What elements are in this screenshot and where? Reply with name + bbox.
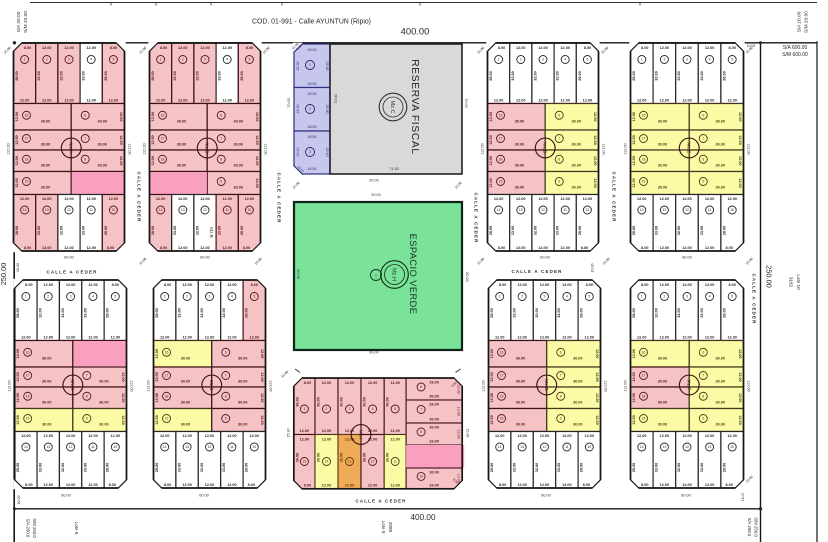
svg-text:28.00: 28.00 <box>722 463 726 473</box>
svg-text:12.00: 12.00 <box>155 415 159 425</box>
svg-text:1: 1 <box>641 58 643 62</box>
svg-text:12.00: 12.00 <box>660 483 670 487</box>
svg-text:12.00: 12.00 <box>660 283 670 287</box>
svg-text:12.00: 12.00 <box>345 483 355 487</box>
svg-text:32.00: 32.00 <box>677 308 681 318</box>
svg-text:Mz.B: Mz.B <box>209 227 214 237</box>
svg-text:3: 3 <box>542 58 544 62</box>
svg-text:2: 2 <box>46 58 48 62</box>
svg-text:12.00: 12.00 <box>260 415 264 425</box>
svg-text:32.00: 32.00 <box>37 71 41 81</box>
svg-text:30.00: 30.00 <box>573 423 583 427</box>
svg-text:112.00: 112.00 <box>269 380 273 391</box>
svg-text:8.00: 8.00 <box>109 483 116 487</box>
svg-text:14: 14 <box>640 208 644 212</box>
svg-text:1: 1 <box>375 274 377 278</box>
svg-text:12.00: 12.00 <box>322 438 332 442</box>
svg-text:19.30: 19.30 <box>308 48 317 52</box>
svg-text:12.00: 12.00 <box>632 178 636 188</box>
svg-text:15: 15 <box>642 180 646 184</box>
svg-text:12.00: 12.00 <box>682 246 692 250</box>
svg-text:32.00: 32.00 <box>557 308 561 318</box>
svg-text:70.00: 70.00 <box>464 98 468 108</box>
svg-text:28.00: 28.00 <box>104 71 108 81</box>
svg-text:12.00: 12.00 <box>16 372 20 382</box>
svg-text:12.00: 12.00 <box>368 381 378 385</box>
svg-text:8.00: 8.00 <box>729 283 736 287</box>
svg-text:16: 16 <box>26 350 30 354</box>
svg-text:112.00: 112.00 <box>147 380 151 391</box>
svg-text:12.00: 12.00 <box>637 434 647 438</box>
svg-text:28.00: 28.00 <box>240 71 244 81</box>
svg-text:18.50: 18.50 <box>308 92 317 96</box>
svg-text:3: 3 <box>309 150 311 154</box>
svg-text:12.00: 12.00 <box>560 46 570 50</box>
svg-text:12.00: 12.00 <box>222 197 232 201</box>
svg-text:30.00: 30.00 <box>573 400 583 404</box>
svg-text:12.00: 12.00 <box>182 434 192 438</box>
svg-text:12.00: 12.00 <box>200 246 210 250</box>
svg-text:32.00: 32.00 <box>556 71 560 81</box>
svg-text:12.00: 12.00 <box>200 46 210 50</box>
svg-text:12.00: 12.00 <box>155 372 159 382</box>
svg-text:12.00: 12.00 <box>260 349 264 359</box>
svg-text:112.00: 112.00 <box>624 380 628 391</box>
svg-text:8.00: 8.00 <box>586 283 593 287</box>
svg-text:12.00: 12.00 <box>64 46 74 50</box>
svg-text:12.00: 12.00 <box>222 46 232 50</box>
svg-text:12.00: 12.00 <box>121 372 125 382</box>
svg-text:15: 15 <box>303 460 307 464</box>
svg-text:18: 18 <box>161 157 165 161</box>
svg-text:30.00: 30.00 <box>571 163 581 167</box>
svg-text:7: 7 <box>702 374 704 378</box>
svg-text:32.00: 32.00 <box>195 71 199 81</box>
svg-text:25.30: 25.30 <box>325 105 329 114</box>
svg-text:16.00: 16.00 <box>741 493 745 502</box>
svg-text:12.00: 12.00 <box>42 99 52 103</box>
svg-text:12.00: 12.00 <box>560 246 570 250</box>
svg-text:12.00: 12.00 <box>593 178 597 188</box>
svg-text:8: 8 <box>702 157 704 161</box>
svg-text:15: 15 <box>499 180 503 184</box>
svg-text:Mz.F: Mz.F <box>686 380 692 391</box>
svg-text:3: 3 <box>686 58 688 62</box>
svg-text:6: 6 <box>702 350 704 354</box>
svg-text:32.00: 32.00 <box>200 308 204 318</box>
svg-text:9: 9 <box>558 180 560 184</box>
svg-text:12.00: 12.00 <box>88 336 98 340</box>
svg-text:12.00: 12.00 <box>637 197 647 201</box>
svg-text:112.00: 112.00 <box>8 380 12 391</box>
svg-text:12.00: 12.00 <box>227 434 237 438</box>
svg-text:12.00: 12.00 <box>457 429 461 439</box>
svg-text:S/M 250.0: S/M 250.0 <box>32 518 37 538</box>
svg-text:8.00: 8.00 <box>726 483 733 487</box>
svg-text:9: 9 <box>702 180 704 184</box>
svg-text:12.00: 12.00 <box>200 197 210 201</box>
svg-text:33.00: 33.00 <box>655 226 659 236</box>
svg-text:13: 13 <box>45 208 49 212</box>
svg-text:30.00: 30.00 <box>571 186 581 190</box>
svg-text:2089: 2089 <box>388 522 393 533</box>
svg-text:12.00: 12.00 <box>109 99 119 103</box>
svg-text:30.00: 30.00 <box>181 380 191 384</box>
svg-text:30.00: 30.00 <box>42 423 52 427</box>
svg-text:30.00: 30.00 <box>515 186 525 190</box>
svg-text:12.00: 12.00 <box>20 99 30 103</box>
svg-text:30.00: 30.00 <box>238 380 248 384</box>
svg-text:8: 8 <box>225 394 227 398</box>
svg-text:12.00: 12.00 <box>593 135 597 145</box>
svg-text:28.00: 28.00 <box>722 226 726 236</box>
svg-text:12.00: 12.00 <box>494 197 504 201</box>
svg-text:5: 5 <box>588 295 590 299</box>
svg-text:12.00: 12.00 <box>738 156 742 166</box>
svg-text:9: 9 <box>560 417 562 421</box>
svg-text:12.00: 12.00 <box>738 178 742 188</box>
svg-text:12.00: 12.00 <box>66 483 76 487</box>
svg-text:30.00: 30.00 <box>42 356 52 360</box>
svg-text:32.00: 32.00 <box>59 226 63 236</box>
svg-text:30.00: 30.00 <box>716 163 726 167</box>
svg-text:12.00: 12.00 <box>43 434 53 438</box>
svg-text:4: 4 <box>564 58 566 62</box>
svg-text:Mz.H: Mz.H <box>391 268 397 281</box>
svg-text:18: 18 <box>500 394 504 398</box>
svg-text:30.00: 30.00 <box>41 143 51 147</box>
svg-text:12.00: 12.00 <box>119 135 123 145</box>
svg-text:12.00: 12.00 <box>155 393 159 403</box>
svg-text:12.00: 12.00 <box>178 99 188 103</box>
svg-text:12.00: 12.00 <box>156 99 166 103</box>
svg-text:32.00: 32.00 <box>533 71 537 81</box>
svg-text:12.00: 12.00 <box>15 112 19 122</box>
svg-text:32.00: 32.00 <box>61 463 65 473</box>
svg-text:12.00: 12.00 <box>489 135 493 145</box>
svg-text:112.00: 112.00 <box>7 143 11 154</box>
svg-text:8.00: 8.00 <box>304 483 311 487</box>
svg-text:11: 11 <box>708 445 712 449</box>
svg-text:7: 7 <box>558 137 560 141</box>
svg-text:8.00: 8.00 <box>498 46 505 50</box>
svg-text:60.00: 60.00 <box>64 256 74 260</box>
svg-text:13: 13 <box>185 445 189 449</box>
svg-text:30.00: 30.00 <box>429 471 439 475</box>
svg-text:28.00: 28.00 <box>632 71 636 81</box>
svg-text:12: 12 <box>69 445 73 449</box>
svg-text:12.00: 12.00 <box>632 393 636 403</box>
svg-text:16: 16 <box>642 113 646 117</box>
svg-text:12.00: 12.00 <box>42 197 52 201</box>
svg-text:28.00: 28.00 <box>240 226 244 236</box>
svg-text:4: 4 <box>231 295 233 299</box>
svg-text:12.00: 12.00 <box>88 283 98 287</box>
svg-text:36.00: 36.00 <box>340 453 344 463</box>
svg-text:Lote 8: Lote 8 <box>74 522 79 535</box>
svg-text:4: 4 <box>566 295 568 299</box>
svg-text:30.00: 30.00 <box>233 186 243 190</box>
svg-text:10: 10 <box>586 208 590 212</box>
svg-text:11: 11 <box>225 208 229 212</box>
svg-text:11: 11 <box>393 460 397 464</box>
svg-text:32.00: 32.00 <box>195 226 199 236</box>
svg-text:12.00: 12.00 <box>21 336 31 340</box>
svg-text:8.00: 8.00 <box>164 483 171 487</box>
svg-text:12: 12 <box>685 208 689 212</box>
svg-text:30.00: 30.00 <box>516 400 526 404</box>
svg-text:12: 12 <box>371 460 375 464</box>
svg-text:12.00: 12.00 <box>222 99 232 103</box>
svg-text:12.00: 12.00 <box>632 349 636 359</box>
svg-text:70.00: 70.00 <box>334 94 338 104</box>
svg-text:12.00: 12.00 <box>682 434 692 438</box>
svg-text:112.00: 112.00 <box>481 143 485 154</box>
svg-text:RESERVA FISCAL: RESERVA FISCAL <box>409 59 420 154</box>
svg-text:12.00: 12.00 <box>632 135 636 145</box>
svg-text:CALLE A CEDER: CALLE A CEDER <box>511 269 562 274</box>
svg-text:12.00: 12.00 <box>178 197 188 201</box>
svg-text:12.00: 12.00 <box>727 336 737 340</box>
svg-text:12.00: 12.00 <box>227 283 237 287</box>
svg-text:12.00: 12.00 <box>562 336 572 340</box>
svg-text:14: 14 <box>640 445 644 449</box>
svg-text:8.00: 8.00 <box>251 283 258 287</box>
svg-text:30.00: 30.00 <box>573 380 583 384</box>
svg-text:33.00: 33.00 <box>700 226 704 236</box>
svg-text:11: 11 <box>708 208 712 212</box>
svg-text:12.00: 12.00 <box>517 283 527 287</box>
svg-text:12.00: 12.00 <box>86 46 96 50</box>
svg-text:112.00: 112.00 <box>130 380 134 391</box>
svg-text:8.00: 8.00 <box>24 246 31 250</box>
svg-text:9: 9 <box>86 417 88 421</box>
svg-text:7: 7 <box>84 137 86 141</box>
svg-text:26.00: 26.00 <box>429 381 439 385</box>
svg-text:12.00: 12.00 <box>593 112 597 122</box>
svg-text:12.00: 12.00 <box>205 434 215 438</box>
svg-text:12.00: 12.00 <box>20 197 30 201</box>
svg-text:28.00: 28.00 <box>578 71 582 81</box>
svg-text:33.00: 33.00 <box>556 226 560 236</box>
svg-text:32.00: 32.00 <box>218 71 222 81</box>
svg-text:2: 2 <box>186 295 188 299</box>
svg-text:12.00: 12.00 <box>42 46 52 50</box>
svg-text:5: 5 <box>394 407 396 411</box>
svg-text:3: 3 <box>544 295 546 299</box>
svg-text:12.00: 12.00 <box>560 197 570 201</box>
svg-text:12.00: 12.00 <box>66 434 76 438</box>
svg-text:12.00: 12.00 <box>632 415 636 425</box>
svg-text:12.00: 12.00 <box>43 483 53 487</box>
svg-text:30.00: 30.00 <box>238 356 248 360</box>
svg-text:32.00: 32.00 <box>533 226 537 236</box>
svg-text:5: 5 <box>731 58 733 62</box>
svg-text:30.00: 30.00 <box>233 119 243 123</box>
svg-text:12.00: 12.00 <box>705 246 715 250</box>
svg-text:4: 4 <box>90 58 92 62</box>
svg-text:30.00: 30.00 <box>99 380 109 384</box>
svg-text:10: 10 <box>419 475 423 479</box>
svg-text:12: 12 <box>541 208 545 212</box>
svg-text:30.00: 30.00 <box>571 143 581 147</box>
svg-text:12: 12 <box>685 445 689 449</box>
svg-text:12.00: 12.00 <box>111 434 121 438</box>
svg-text:30.00: 30.00 <box>658 186 668 190</box>
svg-text:12.00: 12.00 <box>660 434 670 438</box>
svg-text:2: 2 <box>520 58 522 62</box>
svg-text:32.00: 32.00 <box>39 308 43 318</box>
svg-text:12.00: 12.00 <box>632 372 636 382</box>
svg-text:32.00: 32.00 <box>173 71 177 81</box>
svg-text:28.00: 28.00 <box>490 308 494 318</box>
svg-text:3: 3 <box>204 58 206 62</box>
svg-text:12.00: 12.00 <box>705 46 715 50</box>
svg-text:36.00: 36.00 <box>317 397 321 407</box>
svg-text:12.00: 12.00 <box>16 415 20 425</box>
svg-text:17: 17 <box>499 137 503 141</box>
svg-text:12.00: 12.00 <box>705 434 715 438</box>
svg-text:12.00: 12.00 <box>178 46 188 50</box>
svg-text:30.00: 30.00 <box>42 400 52 404</box>
svg-text:32.00: 32.00 <box>200 463 204 473</box>
svg-text:12.00: 12.00 <box>182 483 192 487</box>
svg-text:28.00: 28.00 <box>151 226 155 236</box>
svg-text:12.00: 12.00 <box>660 46 670 50</box>
svg-text:36.00: 36.00 <box>363 453 367 463</box>
svg-text:12.00: 12.00 <box>705 197 715 201</box>
svg-text:32.00: 32.00 <box>655 71 659 81</box>
svg-text:33.00: 33.00 <box>511 226 515 236</box>
svg-text:28.00: 28.00 <box>15 226 19 236</box>
svg-text:28.00: 28.00 <box>104 226 108 236</box>
svg-text:80.00: 80.00 <box>465 272 469 282</box>
svg-text:2: 2 <box>663 58 665 62</box>
svg-text:12.00: 12.00 <box>540 336 550 340</box>
svg-text:3: 3 <box>70 295 72 299</box>
svg-text:8: 8 <box>84 157 86 161</box>
svg-text:CALLE A CEDER: CALLE A CEDER <box>474 192 479 243</box>
svg-text:17: 17 <box>642 137 646 141</box>
svg-text:16: 16 <box>500 350 504 354</box>
svg-text:30.00: 30.00 <box>233 143 243 147</box>
svg-text:ESPACIO VERDE: ESPACIO VERDE <box>408 234 418 315</box>
svg-text:28.00: 28.00 <box>580 308 584 318</box>
svg-text:30.00: 30.00 <box>571 119 581 123</box>
svg-text:18: 18 <box>499 157 503 161</box>
svg-text:8.00: 8.00 <box>248 483 255 487</box>
svg-text:5: 5 <box>112 58 114 62</box>
svg-text:12.00: 12.00 <box>540 483 550 487</box>
svg-text:8.00: 8.00 <box>112 283 119 287</box>
svg-text:16: 16 <box>161 113 165 117</box>
svg-text:12.00: 12.00 <box>595 349 599 359</box>
svg-text:8.00: 8.00 <box>25 483 32 487</box>
svg-text:250.00: 250.00 <box>765 265 774 288</box>
svg-text:23.30: 23.30 <box>325 62 329 71</box>
svg-text:28.00: 28.00 <box>106 308 110 318</box>
svg-text:16.00: 16.00 <box>16 263 20 272</box>
svg-text:18: 18 <box>25 157 29 161</box>
svg-text:36.00: 36.00 <box>386 397 390 407</box>
svg-text:2: 2 <box>309 107 311 111</box>
svg-text:CALLE A CEDER: CALLE A CEDER <box>612 171 617 222</box>
svg-text:7: 7 <box>86 374 88 378</box>
svg-text:12.00: 12.00 <box>111 336 121 340</box>
svg-text:60.00: 60.00 <box>200 256 210 260</box>
svg-text:1: 1 <box>309 63 311 67</box>
svg-text:15: 15 <box>500 417 504 421</box>
svg-text:12.00: 12.00 <box>457 384 461 394</box>
svg-text:1: 1 <box>164 295 166 299</box>
svg-text:12.00: 12.00 <box>390 483 400 487</box>
svg-text:33.00: 33.00 <box>218 226 222 236</box>
svg-text:36.00: 36.00 <box>295 397 299 407</box>
svg-text:30.00: 30.00 <box>716 423 726 427</box>
svg-text:8.00: 8.00 <box>304 381 311 385</box>
svg-text:12.00: 12.00 <box>682 483 692 487</box>
svg-text:12.00: 12.00 <box>516 197 526 201</box>
svg-text:30.00: 30.00 <box>716 186 726 190</box>
svg-text:3: 3 <box>686 295 688 299</box>
svg-text:12.00: 12.00 <box>260 372 264 382</box>
svg-text:12.00: 12.00 <box>156 197 166 201</box>
svg-text:112.00: 112.00 <box>747 143 751 154</box>
svg-text:5: 5 <box>248 58 250 62</box>
svg-text:1: 1 <box>303 407 305 411</box>
svg-text:8.00: 8.00 <box>641 246 648 250</box>
svg-text:23.40: 23.40 <box>296 148 300 157</box>
svg-text:12.00: 12.00 <box>222 246 232 250</box>
svg-text:12.00: 12.00 <box>727 99 737 103</box>
svg-text:7: 7 <box>225 374 227 378</box>
svg-text:30.00: 30.00 <box>97 143 107 147</box>
svg-text:30.00: 30.00 <box>716 380 726 384</box>
svg-text:12.00: 12.00 <box>490 415 494 425</box>
svg-text:11: 11 <box>565 445 569 449</box>
svg-text:30.00: 30.00 <box>99 423 109 427</box>
svg-text:33.00: 33.00 <box>222 463 226 473</box>
svg-text:30.00: 30.00 <box>429 426 439 430</box>
svg-text:28.00: 28.00 <box>489 226 493 236</box>
svg-text:32.00: 32.00 <box>82 71 86 81</box>
svg-text:10: 10 <box>730 445 734 449</box>
svg-text:30.00: 30.00 <box>177 163 187 167</box>
svg-text:9: 9 <box>225 417 227 421</box>
svg-text:1: 1 <box>160 58 162 62</box>
svg-text:12.00: 12.00 <box>390 438 400 442</box>
svg-text:12.00: 12.00 <box>250 336 260 340</box>
svg-text:12.00: 12.00 <box>200 99 210 103</box>
svg-text:23.30: 23.30 <box>296 105 300 114</box>
svg-text:32.00: 32.00 <box>655 308 659 318</box>
svg-text:15: 15 <box>165 417 169 421</box>
svg-text:12.00: 12.00 <box>119 112 123 122</box>
svg-text:12.00: 12.00 <box>490 393 494 403</box>
svg-text:13: 13 <box>181 208 185 212</box>
svg-text:90.00: 90.00 <box>369 179 379 183</box>
svg-text:12.00: 12.00 <box>345 381 355 385</box>
svg-text:12.00: 12.00 <box>86 246 96 250</box>
svg-text:12.00: 12.00 <box>16 349 20 359</box>
svg-text:12.00: 12.00 <box>490 349 494 359</box>
svg-text:12.00: 12.00 <box>583 197 593 201</box>
svg-text:Mz.C: Mz.C <box>389 100 395 113</box>
svg-text:33.00: 33.00 <box>37 226 41 236</box>
svg-text:8: 8 <box>220 157 222 161</box>
svg-text:30.00: 30.00 <box>516 356 526 360</box>
svg-text:12.00: 12.00 <box>682 46 692 50</box>
